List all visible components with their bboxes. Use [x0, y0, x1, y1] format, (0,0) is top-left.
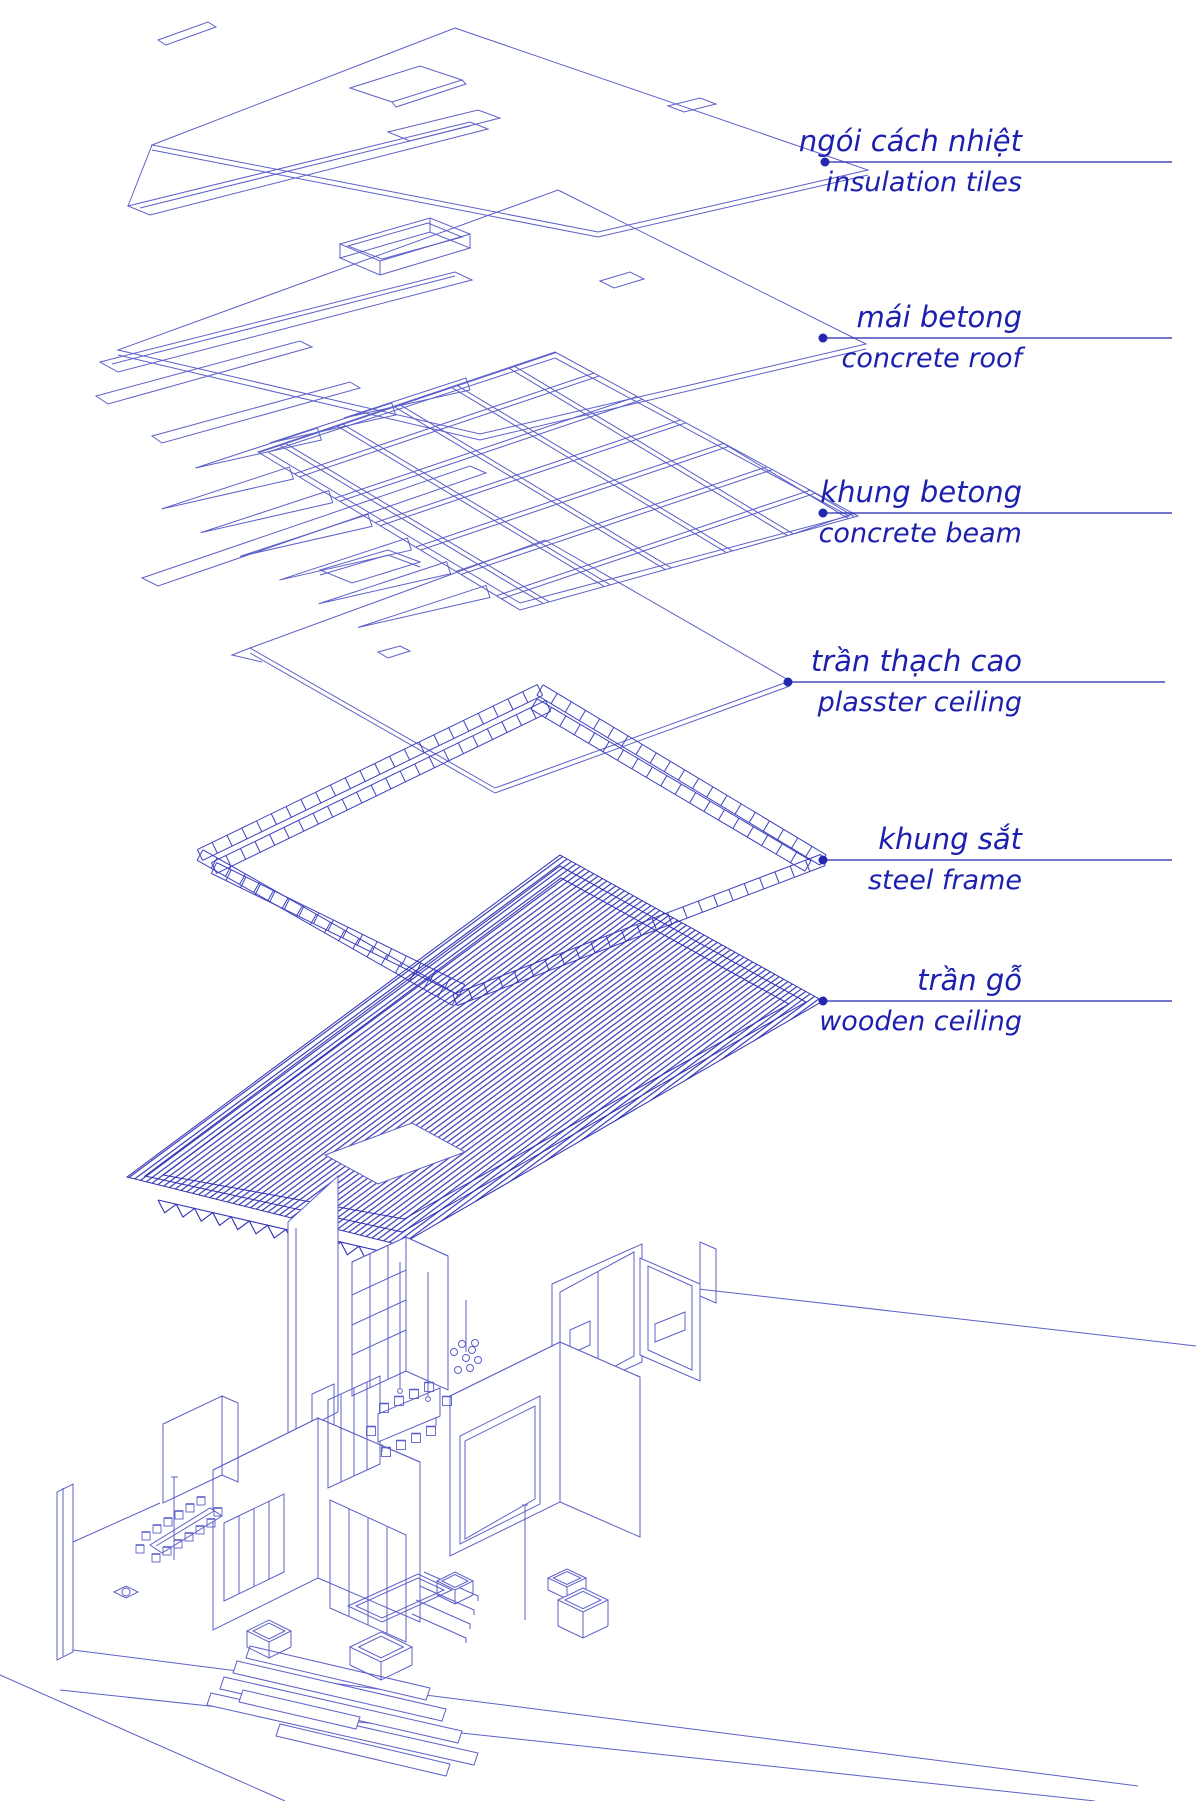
label-vi: khung sắt — [868, 822, 1022, 856]
label-en: insulation tiles — [799, 168, 1022, 198]
label-en: concrete beam — [819, 519, 1022, 549]
exploded-axonometric-drawing — [0, 0, 1200, 1801]
label-wooden-ceiling: trần gỗ wooden ceiling — [819, 963, 1022, 1037]
label-insulation-tiles: ngói cách nhiệt insulation tiles — [799, 124, 1022, 198]
label-en: concrete roof — [842, 344, 1022, 374]
label-steel-frame: khung sắt steel frame — [868, 822, 1022, 896]
layer-concrete-beam-drawing — [142, 352, 858, 627]
label-vi: mái betong — [842, 300, 1022, 334]
label-en: steel frame — [868, 866, 1022, 896]
label-en: plasster ceiling — [811, 688, 1022, 718]
exploded-diagram-page: ngói cách nhiệt insulation tiles mái bet… — [0, 0, 1200, 1801]
house-wireframe-drawing — [0, 1176, 1196, 1801]
label-concrete-roof: mái betong concrete roof — [842, 300, 1022, 374]
leader-dot — [819, 334, 828, 343]
layer-insulation-tiles-drawing — [128, 22, 868, 237]
label-concrete-beam: khung betong concrete beam — [819, 475, 1022, 549]
label-vi: ngói cách nhiệt — [799, 124, 1022, 158]
label-vi: trần gỗ — [819, 963, 1022, 997]
layer-wooden-ceiling-drawing — [127, 855, 823, 1272]
label-en: wooden ceiling — [819, 1007, 1022, 1037]
label-plaster-ceiling: trần thạch cao plasster ceiling — [811, 644, 1022, 718]
label-vi: khung betong — [819, 475, 1022, 509]
label-vi: trần thạch cao — [811, 644, 1022, 678]
leader-dot — [819, 856, 828, 865]
leader-dot — [784, 678, 793, 687]
